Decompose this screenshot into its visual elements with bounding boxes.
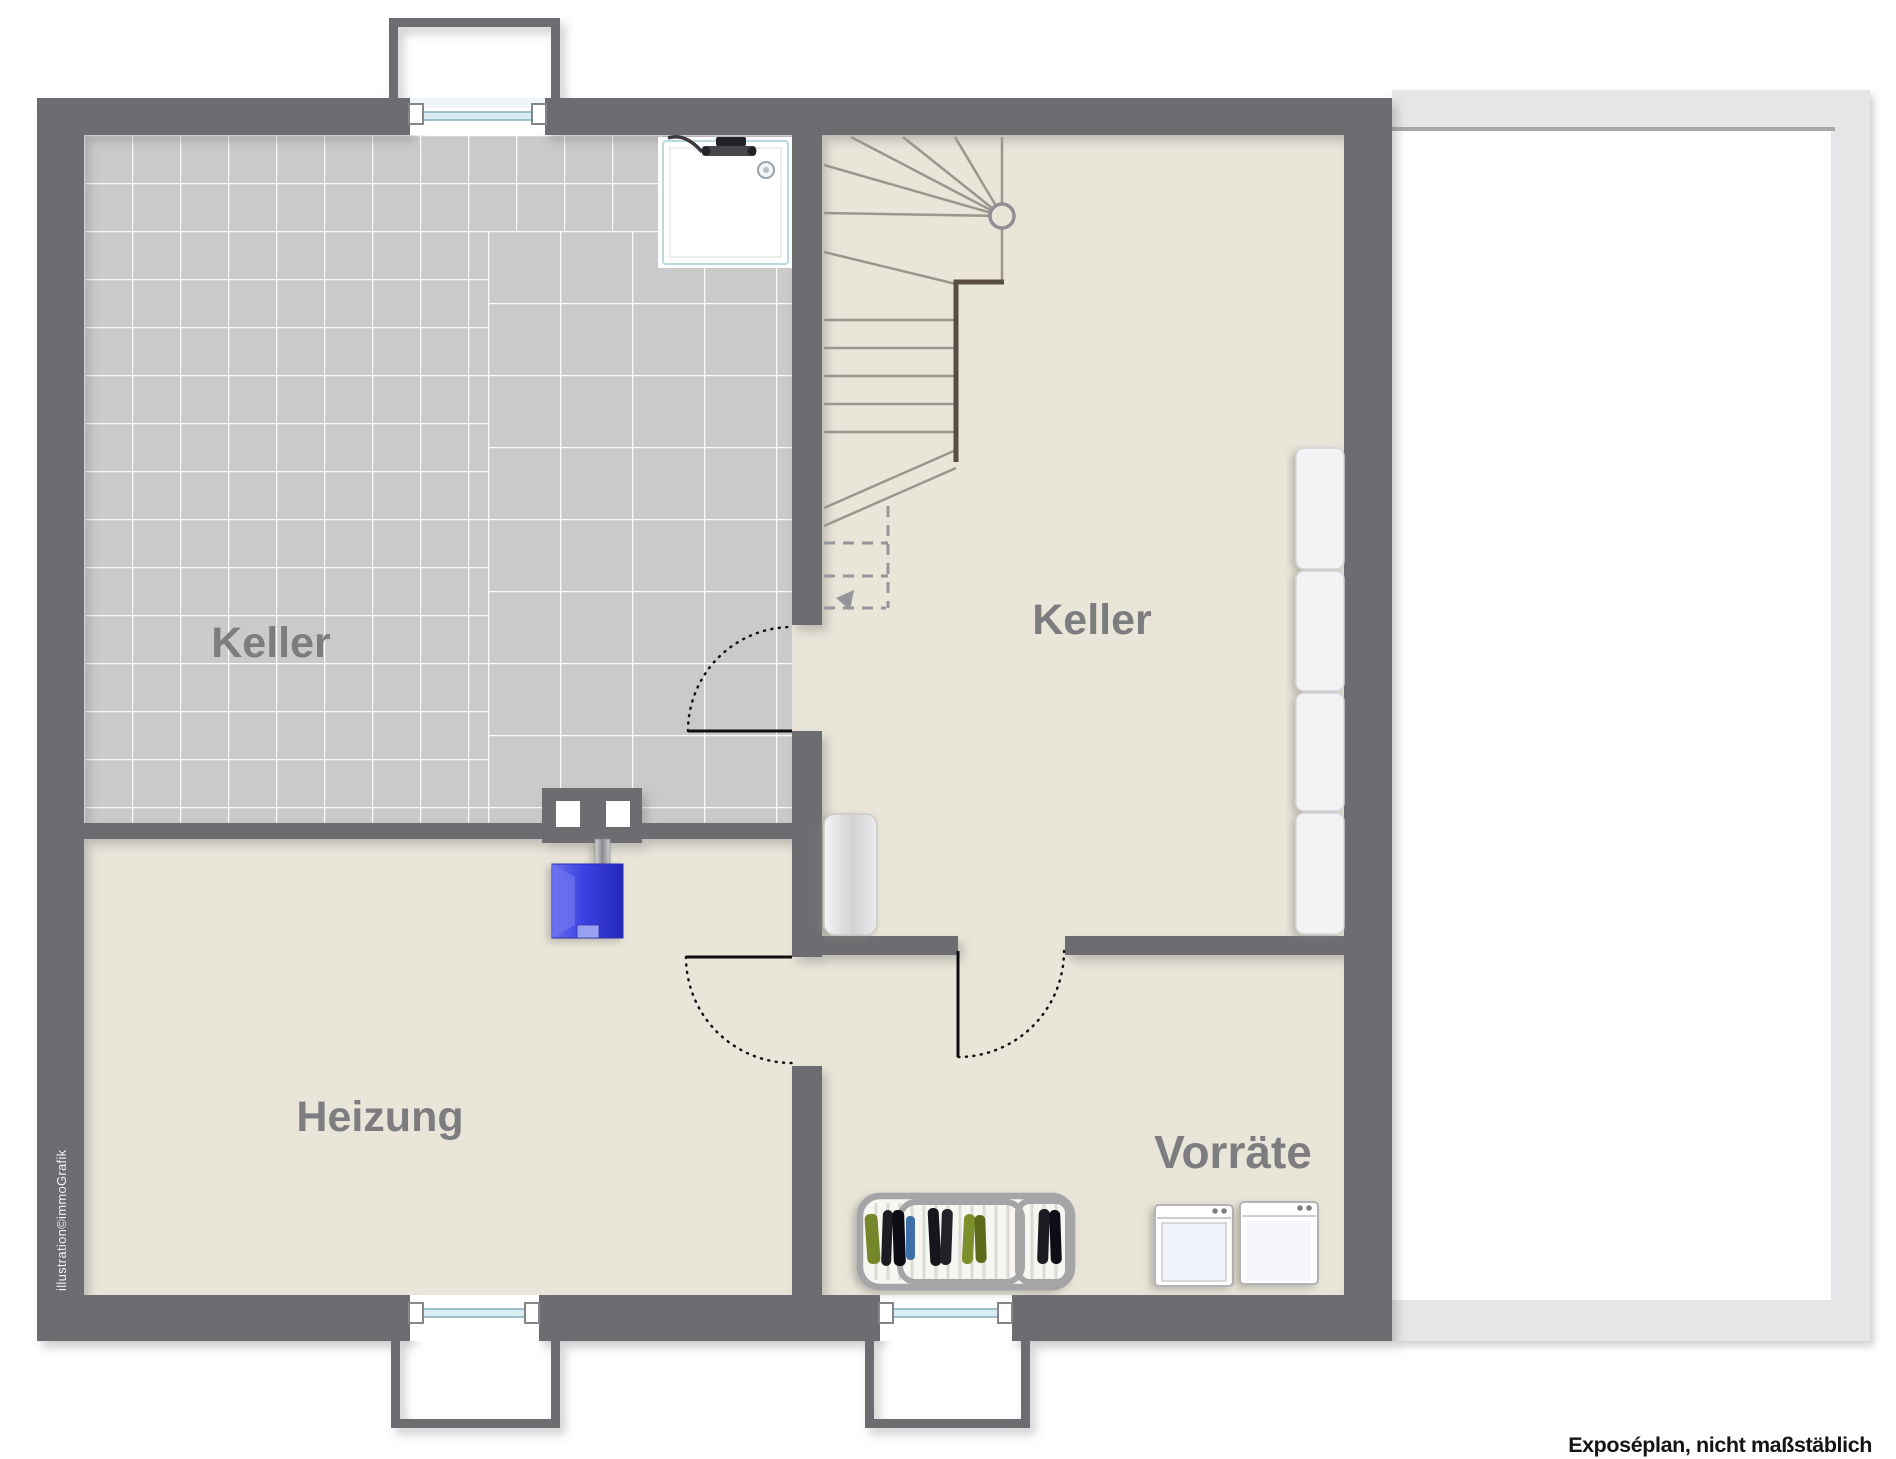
- wall-center-top: [792, 135, 822, 625]
- window-tint: [410, 98, 545, 108]
- shower: [658, 137, 792, 268]
- wall-top-right: [545, 98, 1392, 135]
- shelf-units: [1296, 448, 1344, 934]
- shelf-unit: [1296, 693, 1344, 811]
- room-label-keller-left: Keller: [211, 619, 331, 667]
- window-handle: [409, 104, 423, 124]
- window-glass: [423, 1309, 526, 1317]
- wall-vorraete-1: [822, 936, 958, 955]
- wall-center-bottom: [792, 1066, 822, 1295]
- shower-tray: [663, 141, 788, 264]
- room-label-vorraete: Vorräte: [1154, 1126, 1312, 1178]
- terrace-border-top: [1392, 90, 1870, 130]
- shelf-unit: [1296, 571, 1344, 691]
- wall-keller-heizung: [84, 823, 792, 839]
- terrace: [1392, 90, 1870, 1341]
- machine-door: [1247, 1221, 1311, 1281]
- terrace-border-right: [1831, 90, 1870, 1341]
- washing-machine: [1155, 1205, 1233, 1286]
- chimney-flue-1: [556, 801, 580, 827]
- window-handle: [879, 1303, 893, 1323]
- wall-bottom-2: [539, 1295, 880, 1341]
- credit-text: illustration©immoGrafik: [54, 1149, 69, 1291]
- wall-bottom-3: [1012, 1295, 1392, 1341]
- chimney-flue-2: [606, 801, 630, 827]
- light-well-bottom-left: [396, 1341, 556, 1424]
- floor-plan: Keller Keller Heizung Vorräte illustrati…: [0, 0, 1896, 1459]
- window-handle: [409, 1303, 423, 1323]
- shower-drain-center: [763, 167, 769, 173]
- terrace-floor: [1392, 130, 1831, 1302]
- window-glass: [423, 112, 532, 120]
- window-handle: [998, 1303, 1012, 1323]
- room-label-keller-right: Keller: [1032, 596, 1152, 644]
- disclaimer-text: Exposéplan, nicht maßstäblich: [1568, 1433, 1872, 1457]
- window-sill: [880, 1295, 1012, 1341]
- machine-knob: [1306, 1205, 1312, 1211]
- shelf-unit: [1296, 813, 1344, 934]
- window-bottom-left: [409, 1295, 539, 1341]
- window-glass: [893, 1309, 999, 1317]
- window-bottom-middle: [879, 1295, 1012, 1341]
- machine-door: [1162, 1223, 1226, 1281]
- tiled-floor-zone2: [488, 231, 792, 823]
- wall-right: [1344, 98, 1392, 1341]
- window-handle: [525, 1303, 539, 1323]
- floorplan-page: Keller Keller Heizung Vorräte illustrati…: [0, 0, 1896, 1459]
- boiler-facet: [552, 864, 575, 938]
- wall-center-mid: [792, 731, 822, 957]
- shelf-unit: [1296, 448, 1344, 569]
- shower-head: [716, 137, 746, 146]
- dryer: [1240, 1202, 1318, 1284]
- boiler-flue-pipe: [595, 839, 610, 866]
- drying-rack: [860, 1196, 1072, 1287]
- light-well-bottom-middle: [870, 1341, 1026, 1424]
- light-well-top: [394, 23, 556, 99]
- machine-knob: [1212, 1208, 1218, 1214]
- terrace-edge-line: [1392, 127, 1835, 131]
- wall-vorraete-2: [1065, 936, 1344, 955]
- window-sill: [410, 1295, 539, 1341]
- machine-knob: [1297, 1205, 1303, 1211]
- terrace-border-bottom: [1392, 1300, 1870, 1341]
- wall-bottom-1: [37, 1295, 410, 1341]
- radiator: [824, 814, 877, 935]
- boiler-tab: [577, 925, 599, 938]
- window-handle: [532, 104, 546, 124]
- stair-newel-post: [990, 204, 1014, 228]
- machine-knob: [1221, 1208, 1227, 1214]
- shower-knob: [702, 147, 711, 156]
- wall-top-left: [37, 98, 410, 135]
- window-top: [409, 98, 546, 135]
- shower-knob: [748, 147, 757, 156]
- room-label-heizung: Heizung: [296, 1093, 463, 1141]
